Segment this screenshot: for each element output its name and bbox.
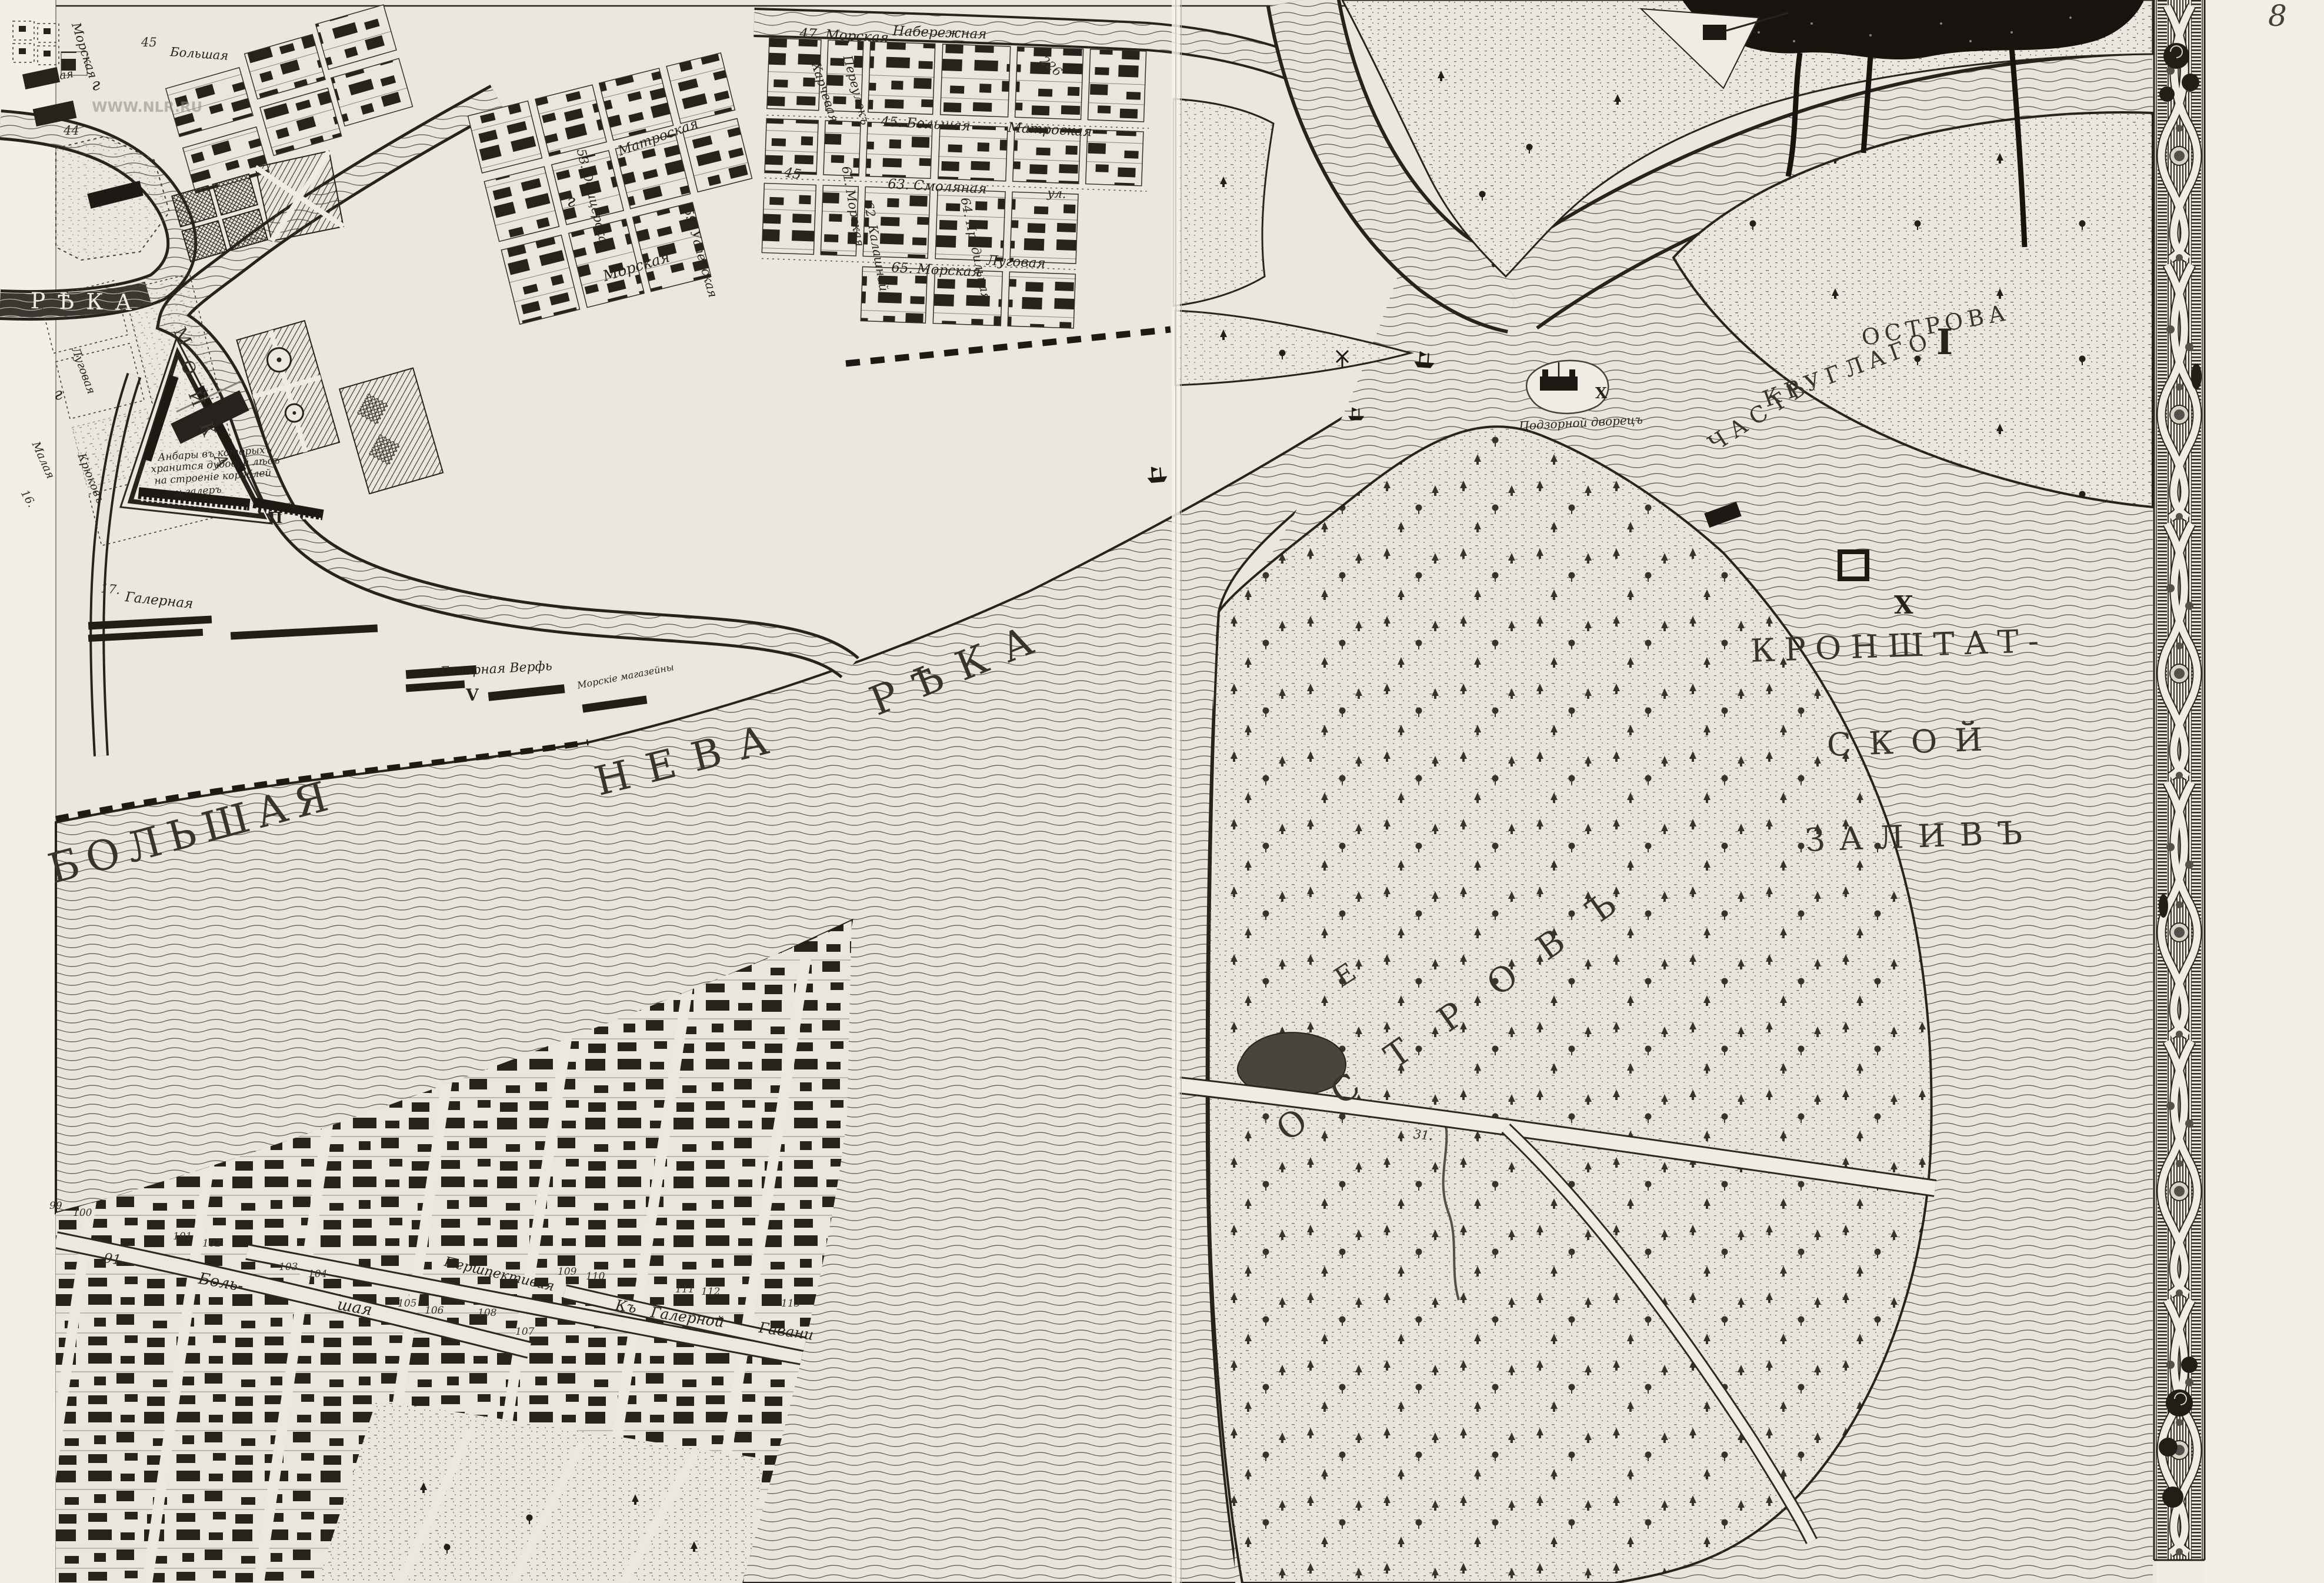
island-letter: Р <box>1432 997 1470 1038</box>
street-pereulok: Переулокъ <box>841 54 872 126</box>
block-number: 105 <box>398 1299 416 1309</box>
street-morskaya: Морская <box>601 249 671 284</box>
label-magazeyny: Морскіе магазейны <box>576 662 675 691</box>
block-number: 109 <box>558 1267 576 1277</box>
block-number: 102 <box>202 1239 221 1249</box>
label-moika-letter: К <box>196 420 218 439</box>
street-ul: ул. <box>1047 187 1066 201</box>
street-k-galernoy-3: Гавани <box>758 1320 815 1342</box>
marker-i: I <box>1936 325 1953 360</box>
street-morskaya-65: 65. Морская <box>891 261 981 279</box>
engraved-map-sheet: БОЛЬШАЯНЕВАРѢКАКРОНШТАТ-СКОЙЗАЛИВЪXЧАСТЬ… <box>0 0 2324 1583</box>
map-labels-layer: БОЛЬШАЯНЕВАРѢКАКРОНШТАТ-СКОЙЗАЛИВЪXЧАСТЬ… <box>0 0 2324 1583</box>
street-bolshaya: Большая <box>170 46 229 62</box>
block-number: 108 <box>478 1308 496 1318</box>
island-letter: О <box>1271 1103 1313 1147</box>
street-kalashnoy-62: 62. Калашной <box>862 201 890 292</box>
label-anbary-4: и галеръ <box>175 485 222 498</box>
street-pershpektivaya: Першпективая <box>443 1255 556 1294</box>
street-matrosskaya-2: Матроская <box>616 117 700 159</box>
label-moika-letter: М <box>170 325 194 349</box>
block-number: 107 <box>515 1327 534 1337</box>
marker-p: П <box>268 511 283 526</box>
label-reka-neva: НЕВА <box>591 716 789 802</box>
street-naberezhnaya: Набережная <box>892 25 987 42</box>
street-k-galernoy-1: Къ <box>615 1298 638 1315</box>
street-matrosskaya: Матроская <box>1008 121 1092 139</box>
street-morskaya-2: Морская <box>69 21 99 80</box>
street-bolshaya-45: 45. Большая <box>881 115 971 134</box>
block-number: 16. <box>19 488 38 509</box>
marker-g: г <box>567 193 575 209</box>
block-number: 111 <box>675 1285 694 1295</box>
block-number: 45 <box>141 36 157 49</box>
block-number: 106 <box>425 1306 444 1316</box>
road-number: 31. <box>1413 1128 1433 1142</box>
street-uspenskaya-59: 59. Успенская <box>682 206 719 299</box>
label-reka-reka: РѢКА <box>865 614 1055 722</box>
street-kharchevaya: Харчевая <box>809 61 840 124</box>
marker-g: г <box>92 76 100 93</box>
scan-watermark: WWW.NLR.RU <box>92 100 202 114</box>
label-galernaya-verf: Галерная Верфь <box>440 660 552 679</box>
street-smolyanaya-63: 63. Смоляная <box>888 178 987 196</box>
block-number: 45 <box>783 166 802 182</box>
island-letter: В <box>1531 924 1571 966</box>
street-k-galernoy-2: Галерной <box>650 1305 725 1329</box>
label-sennaya: Сѣнная <box>26 68 74 88</box>
label-zaliv: ЗАЛИВЪ <box>1805 817 2037 857</box>
island-letter: Е <box>1331 959 1361 991</box>
island-letter: С <box>1325 1068 1366 1111</box>
street-galernaya: Галерная <box>125 591 194 611</box>
street-bolshaya-91b: шая <box>336 1297 373 1318</box>
marker-x-bay: X <box>1894 593 1913 618</box>
block-number: 226 <box>1038 54 1064 79</box>
block-number: 112 <box>701 1287 720 1297</box>
block-number: 99 <box>49 1201 62 1211</box>
marker-g: г <box>54 386 62 402</box>
label-moika-reka: РѢКА <box>30 289 144 314</box>
block-number: 103 <box>279 1262 298 1272</box>
block-number: 44 <box>64 125 79 137</box>
label-kronshtatskoy-2: СКОЙ <box>1826 724 2000 761</box>
label-kronshtatskoy-1: КРОНШТАТ- <box>1750 625 2049 667</box>
street-malaya: Малая <box>30 440 56 481</box>
block-number: 104 <box>308 1269 327 1279</box>
street-ofitserskaya-53: 53. Офицерская <box>575 148 612 252</box>
label-moika-letter: О <box>177 358 199 378</box>
island-letter: Ъ <box>1580 887 1622 930</box>
label-podzorny-dvorets: Подзорной дворецъ <box>1519 414 1643 432</box>
block-number: 101 <box>173 1232 192 1242</box>
marker-v: V <box>466 687 479 704</box>
street-lugovaya-2: Луговая <box>69 346 96 395</box>
block-number: 113 <box>781 1299 800 1309</box>
street-morskaya-47: 47. Морская <box>799 27 889 45</box>
label-ostrova: ОСТРОВА <box>1860 301 2012 349</box>
block-number: 17. <box>100 582 121 596</box>
marker-x-palace: X <box>1595 386 1607 401</box>
island-letter: Т <box>1379 1033 1417 1074</box>
page-number: 8 <box>2268 1 2287 31</box>
street-bolshaya-91a: Боль- <box>197 1271 245 1294</box>
label-kryukov: Крюковъ <box>75 452 105 505</box>
block-number: 100 <box>73 1208 92 1218</box>
street-lugovaya: Луговая <box>986 254 1046 271</box>
block-number: 110 <box>586 1272 605 1282</box>
block-number: 91. <box>103 1252 126 1268</box>
street-pryadilnaya-64: 64. Прядильная <box>958 196 992 301</box>
island-letter: О <box>1481 958 1523 1002</box>
label-moika-letter: Й <box>185 388 207 409</box>
label-reka-bolshaya: БОЛЬШАЯ <box>44 774 340 890</box>
